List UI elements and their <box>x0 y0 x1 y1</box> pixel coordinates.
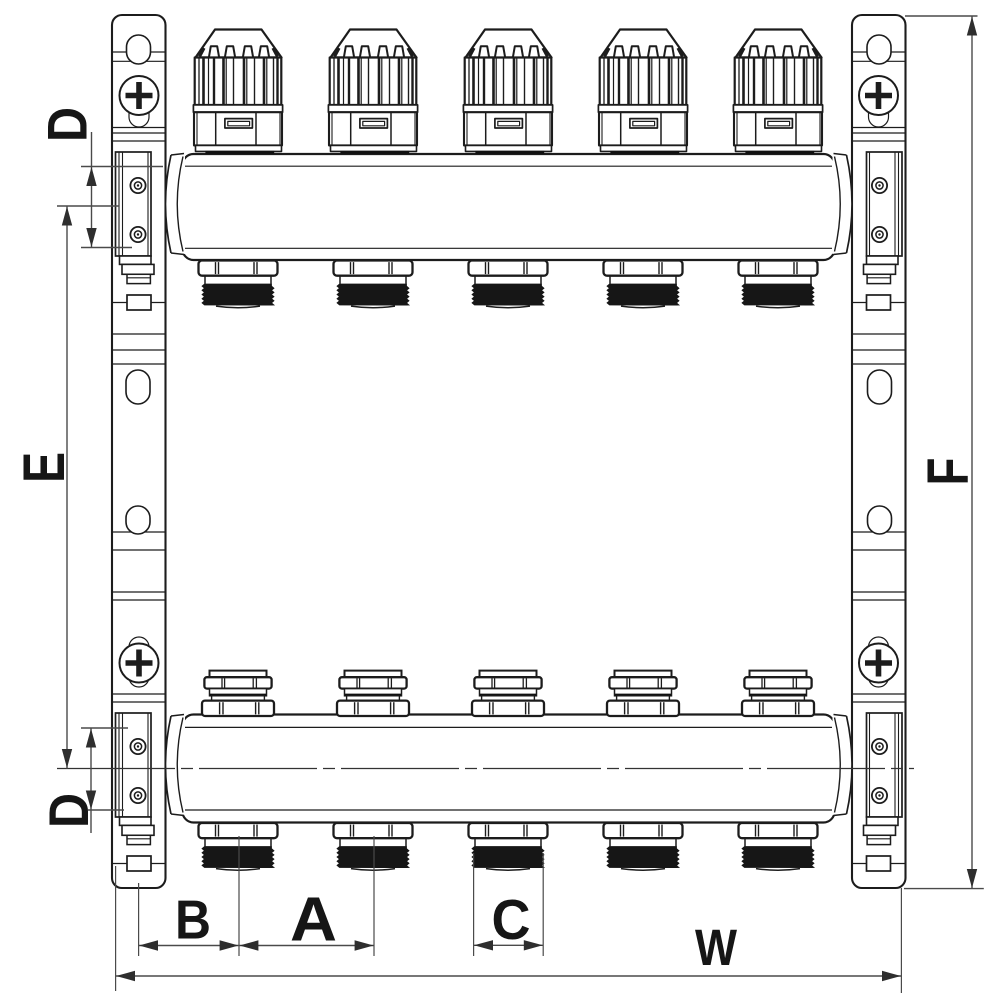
svg-text:D: D <box>37 793 100 828</box>
svg-text:A: A <box>290 886 337 955</box>
svg-text:E: E <box>12 452 77 483</box>
svg-text:W: W <box>695 919 738 976</box>
svg-text:F: F <box>916 458 981 486</box>
svg-text:D: D <box>35 107 98 142</box>
svg-text:B: B <box>175 889 211 951</box>
svg-text:C: C <box>492 888 531 952</box>
